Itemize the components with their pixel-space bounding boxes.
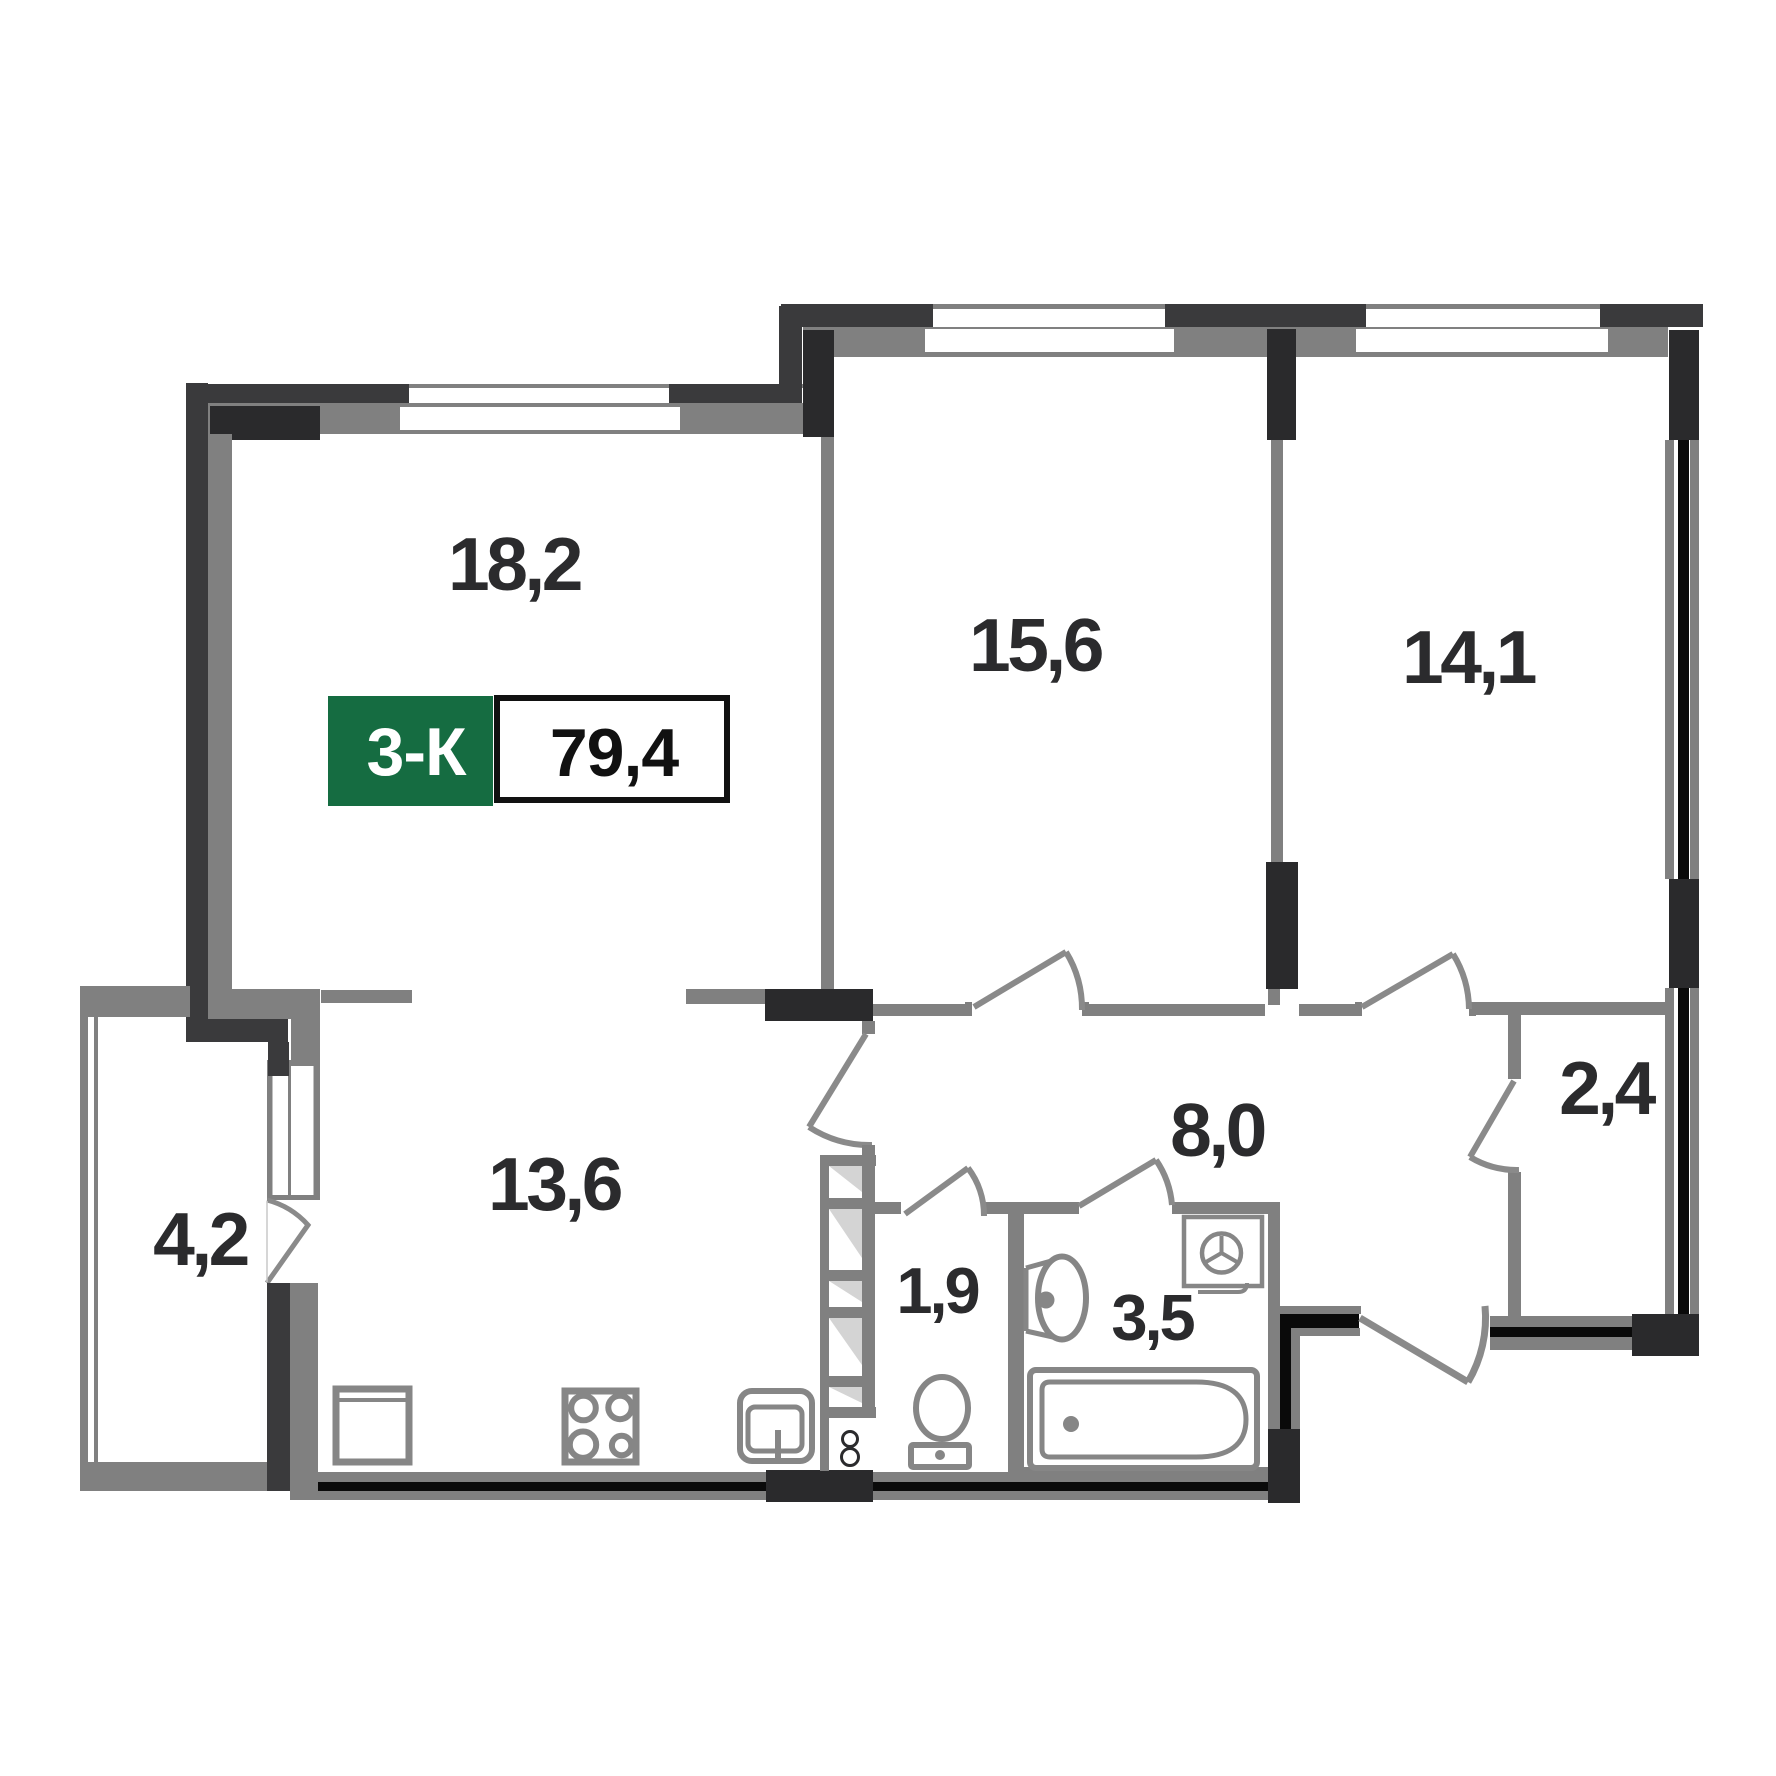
svg-text:14,1: 14,1 bbox=[1402, 615, 1536, 699]
svg-text:13,6: 13,6 bbox=[488, 1142, 621, 1226]
svg-text:18,2: 18,2 bbox=[448, 522, 581, 606]
svg-text:2,4: 2,4 bbox=[1559, 1046, 1657, 1130]
svg-text:15,6: 15,6 bbox=[969, 603, 1102, 687]
svg-text:3,5: 3,5 bbox=[1111, 1281, 1194, 1354]
svg-text:4,2: 4,2 bbox=[153, 1197, 248, 1281]
svg-text:8,0: 8,0 bbox=[1170, 1088, 1265, 1172]
svg-text:79,4: 79,4 bbox=[550, 715, 680, 791]
svg-text:3-К: 3-К bbox=[367, 714, 467, 790]
svg-text:1,9: 1,9 bbox=[896, 1254, 978, 1327]
